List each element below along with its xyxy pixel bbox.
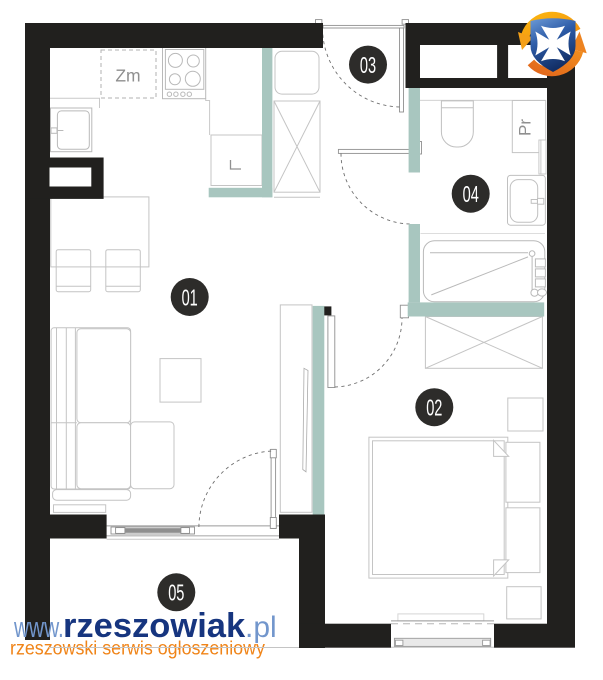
- svg-text:Zm: Zm: [115, 66, 140, 86]
- svg-text:Pr: Pr: [516, 119, 535, 136]
- svg-text:05: 05: [168, 580, 184, 606]
- svg-text:04: 04: [463, 182, 479, 208]
- svg-text:02: 02: [426, 395, 442, 421]
- svg-text:01: 01: [182, 285, 198, 311]
- svg-text:03: 03: [360, 52, 376, 78]
